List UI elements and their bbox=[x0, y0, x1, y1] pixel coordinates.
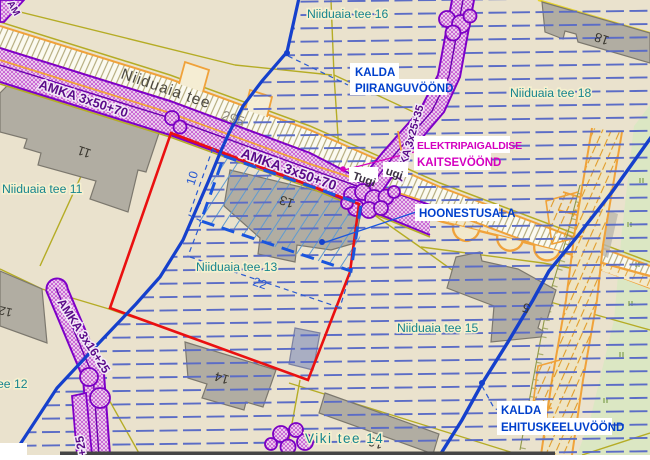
svg-text:ELEKTRIPAIGALDISE: ELEKTRIPAIGALDISE bbox=[417, 140, 522, 152]
svg-text:KAITSEVÖÖND: KAITSEVÖÖND bbox=[417, 156, 501, 169]
svg-text:Viki tee 14: Viki tee 14 bbox=[305, 431, 384, 446]
svg-text:Niiduaia tee 11: Niiduaia tee 11 bbox=[2, 182, 83, 196]
svg-text:EHITUSKEELUVÖÖND: EHITUSKEELUVÖÖND bbox=[501, 421, 624, 434]
svg-text:KALDA: KALDA bbox=[501, 405, 541, 417]
svg-text:ee 12: ee 12 bbox=[0, 377, 28, 391]
svg-text:Niiduaia tee 15: Niiduaia tee 15 bbox=[397, 321, 479, 335]
svg-text:Niiduaia tee 18: Niiduaia tee 18 bbox=[510, 86, 592, 100]
svg-text:Niiduaia tee 13: Niiduaia tee 13 bbox=[196, 260, 278, 274]
svg-text:PIIRANGUVÖÖND: PIIRANGUVÖÖND bbox=[355, 82, 453, 95]
svg-text:Niiduaia tee 16: Niiduaia tee 16 bbox=[307, 7, 389, 21]
svg-text:HOONESTUSALA: HOONESTUSALA bbox=[419, 208, 515, 220]
svg-text:KALDA: KALDA bbox=[355, 67, 395, 79]
